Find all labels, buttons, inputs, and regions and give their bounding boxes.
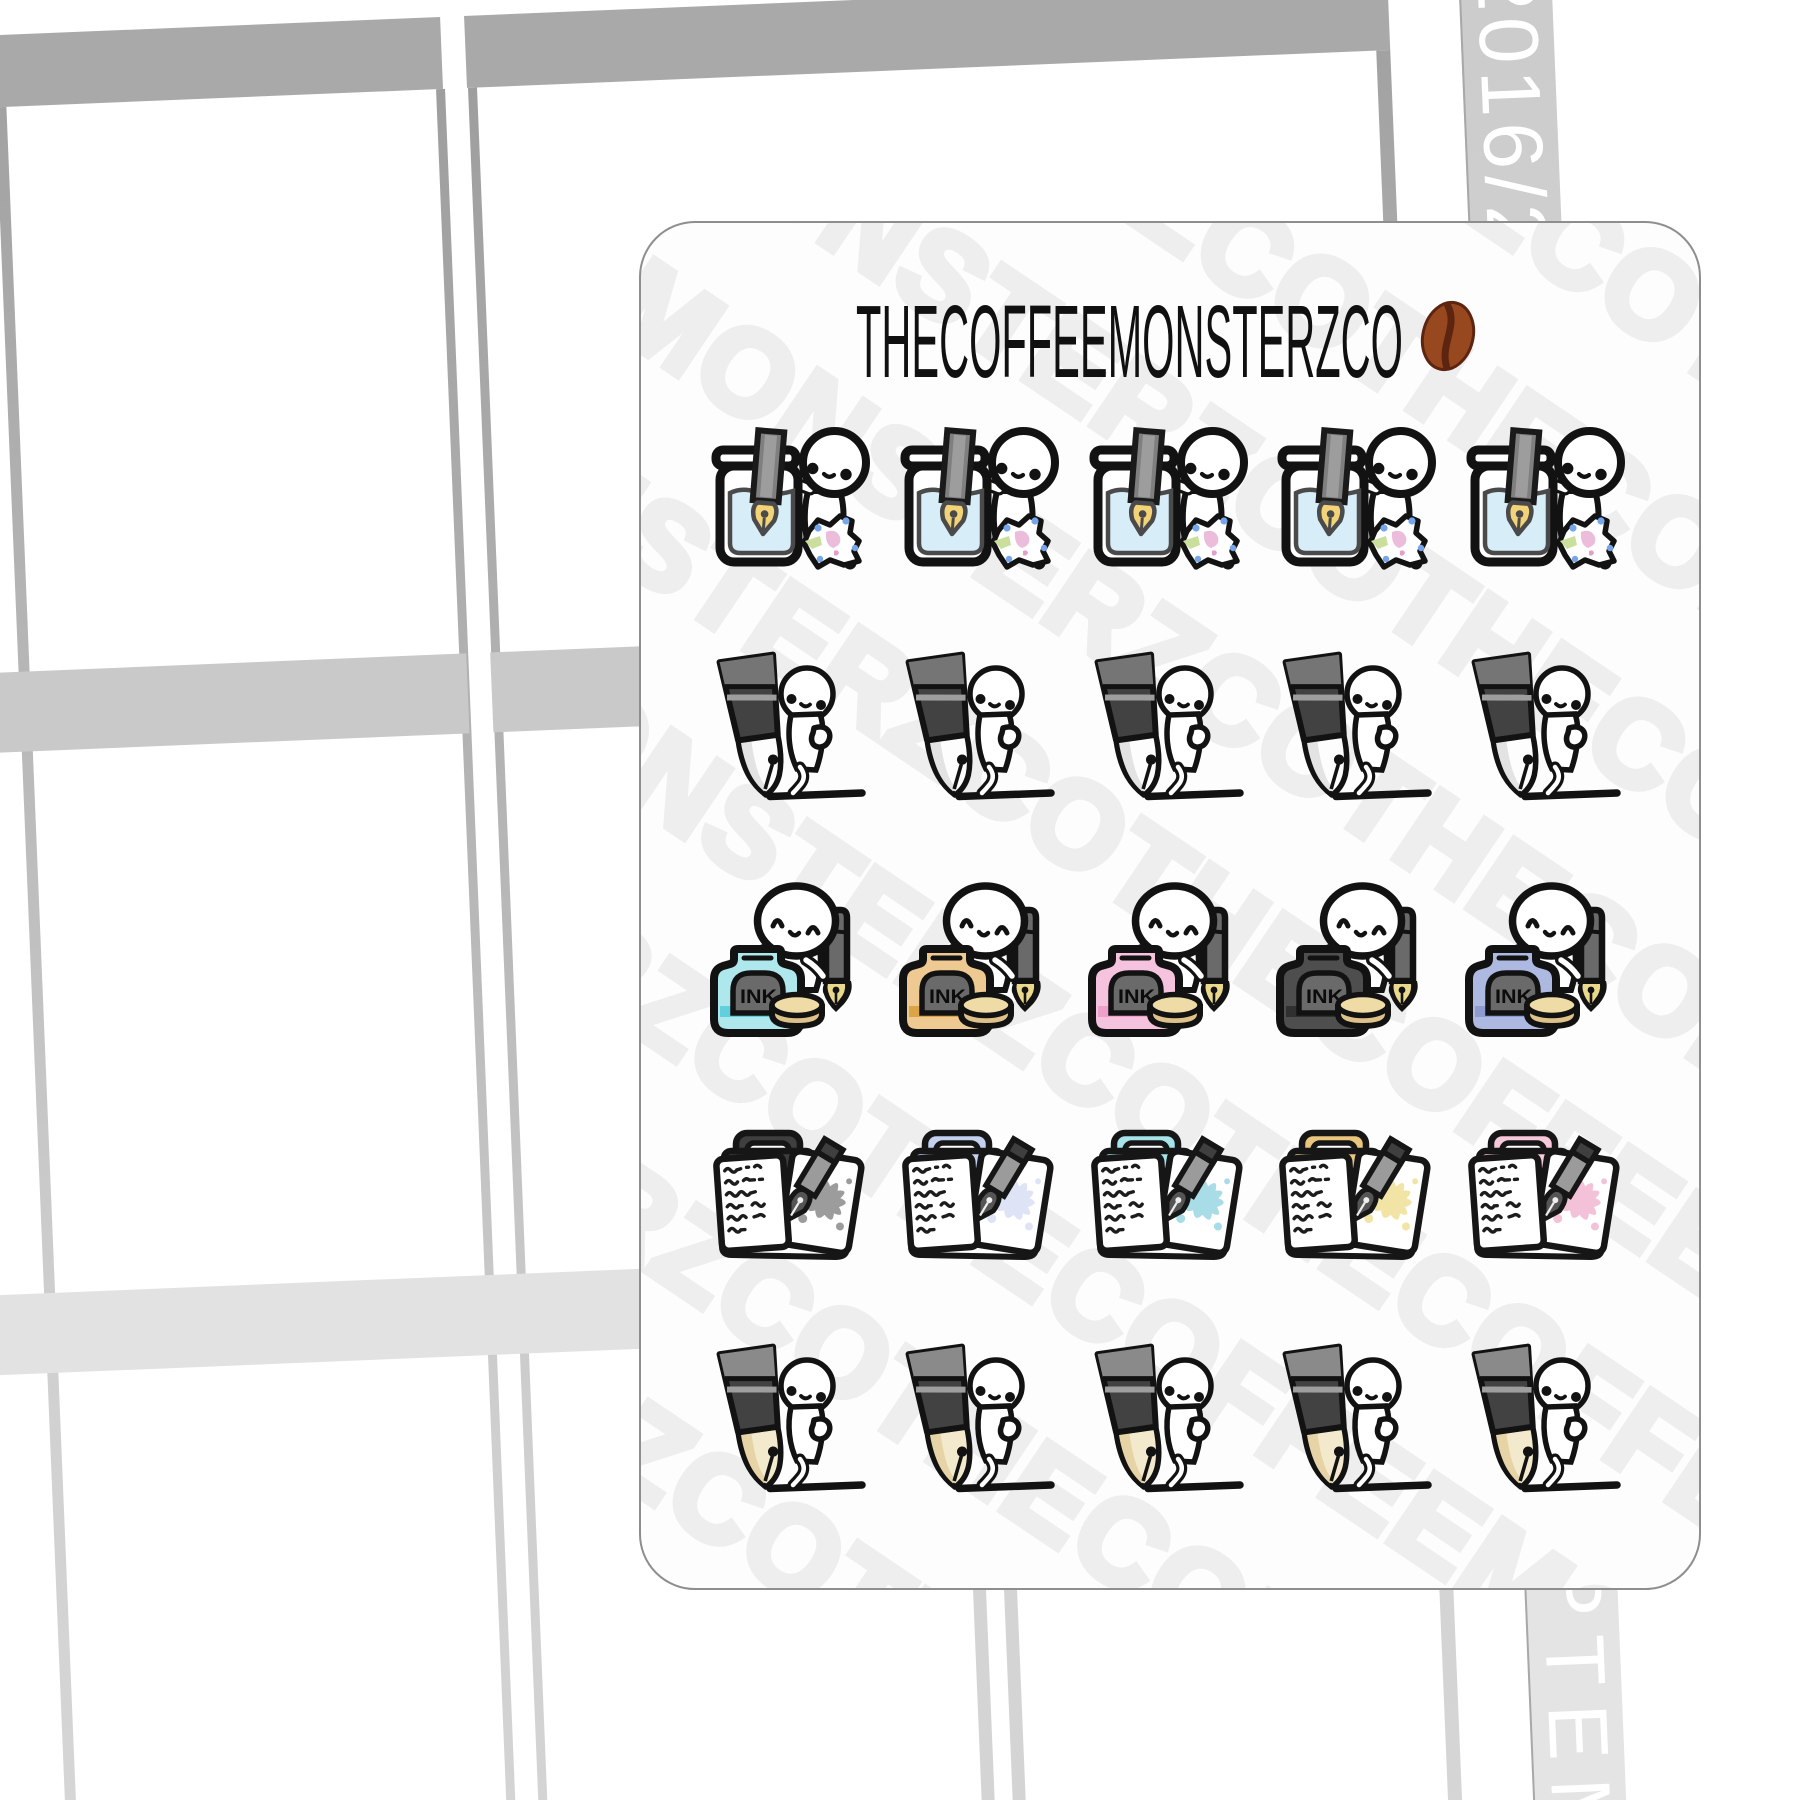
svg-text:THECOFFEEMONSTERZCO: THECOFFEEMONSTERZCO xyxy=(856,284,1403,399)
